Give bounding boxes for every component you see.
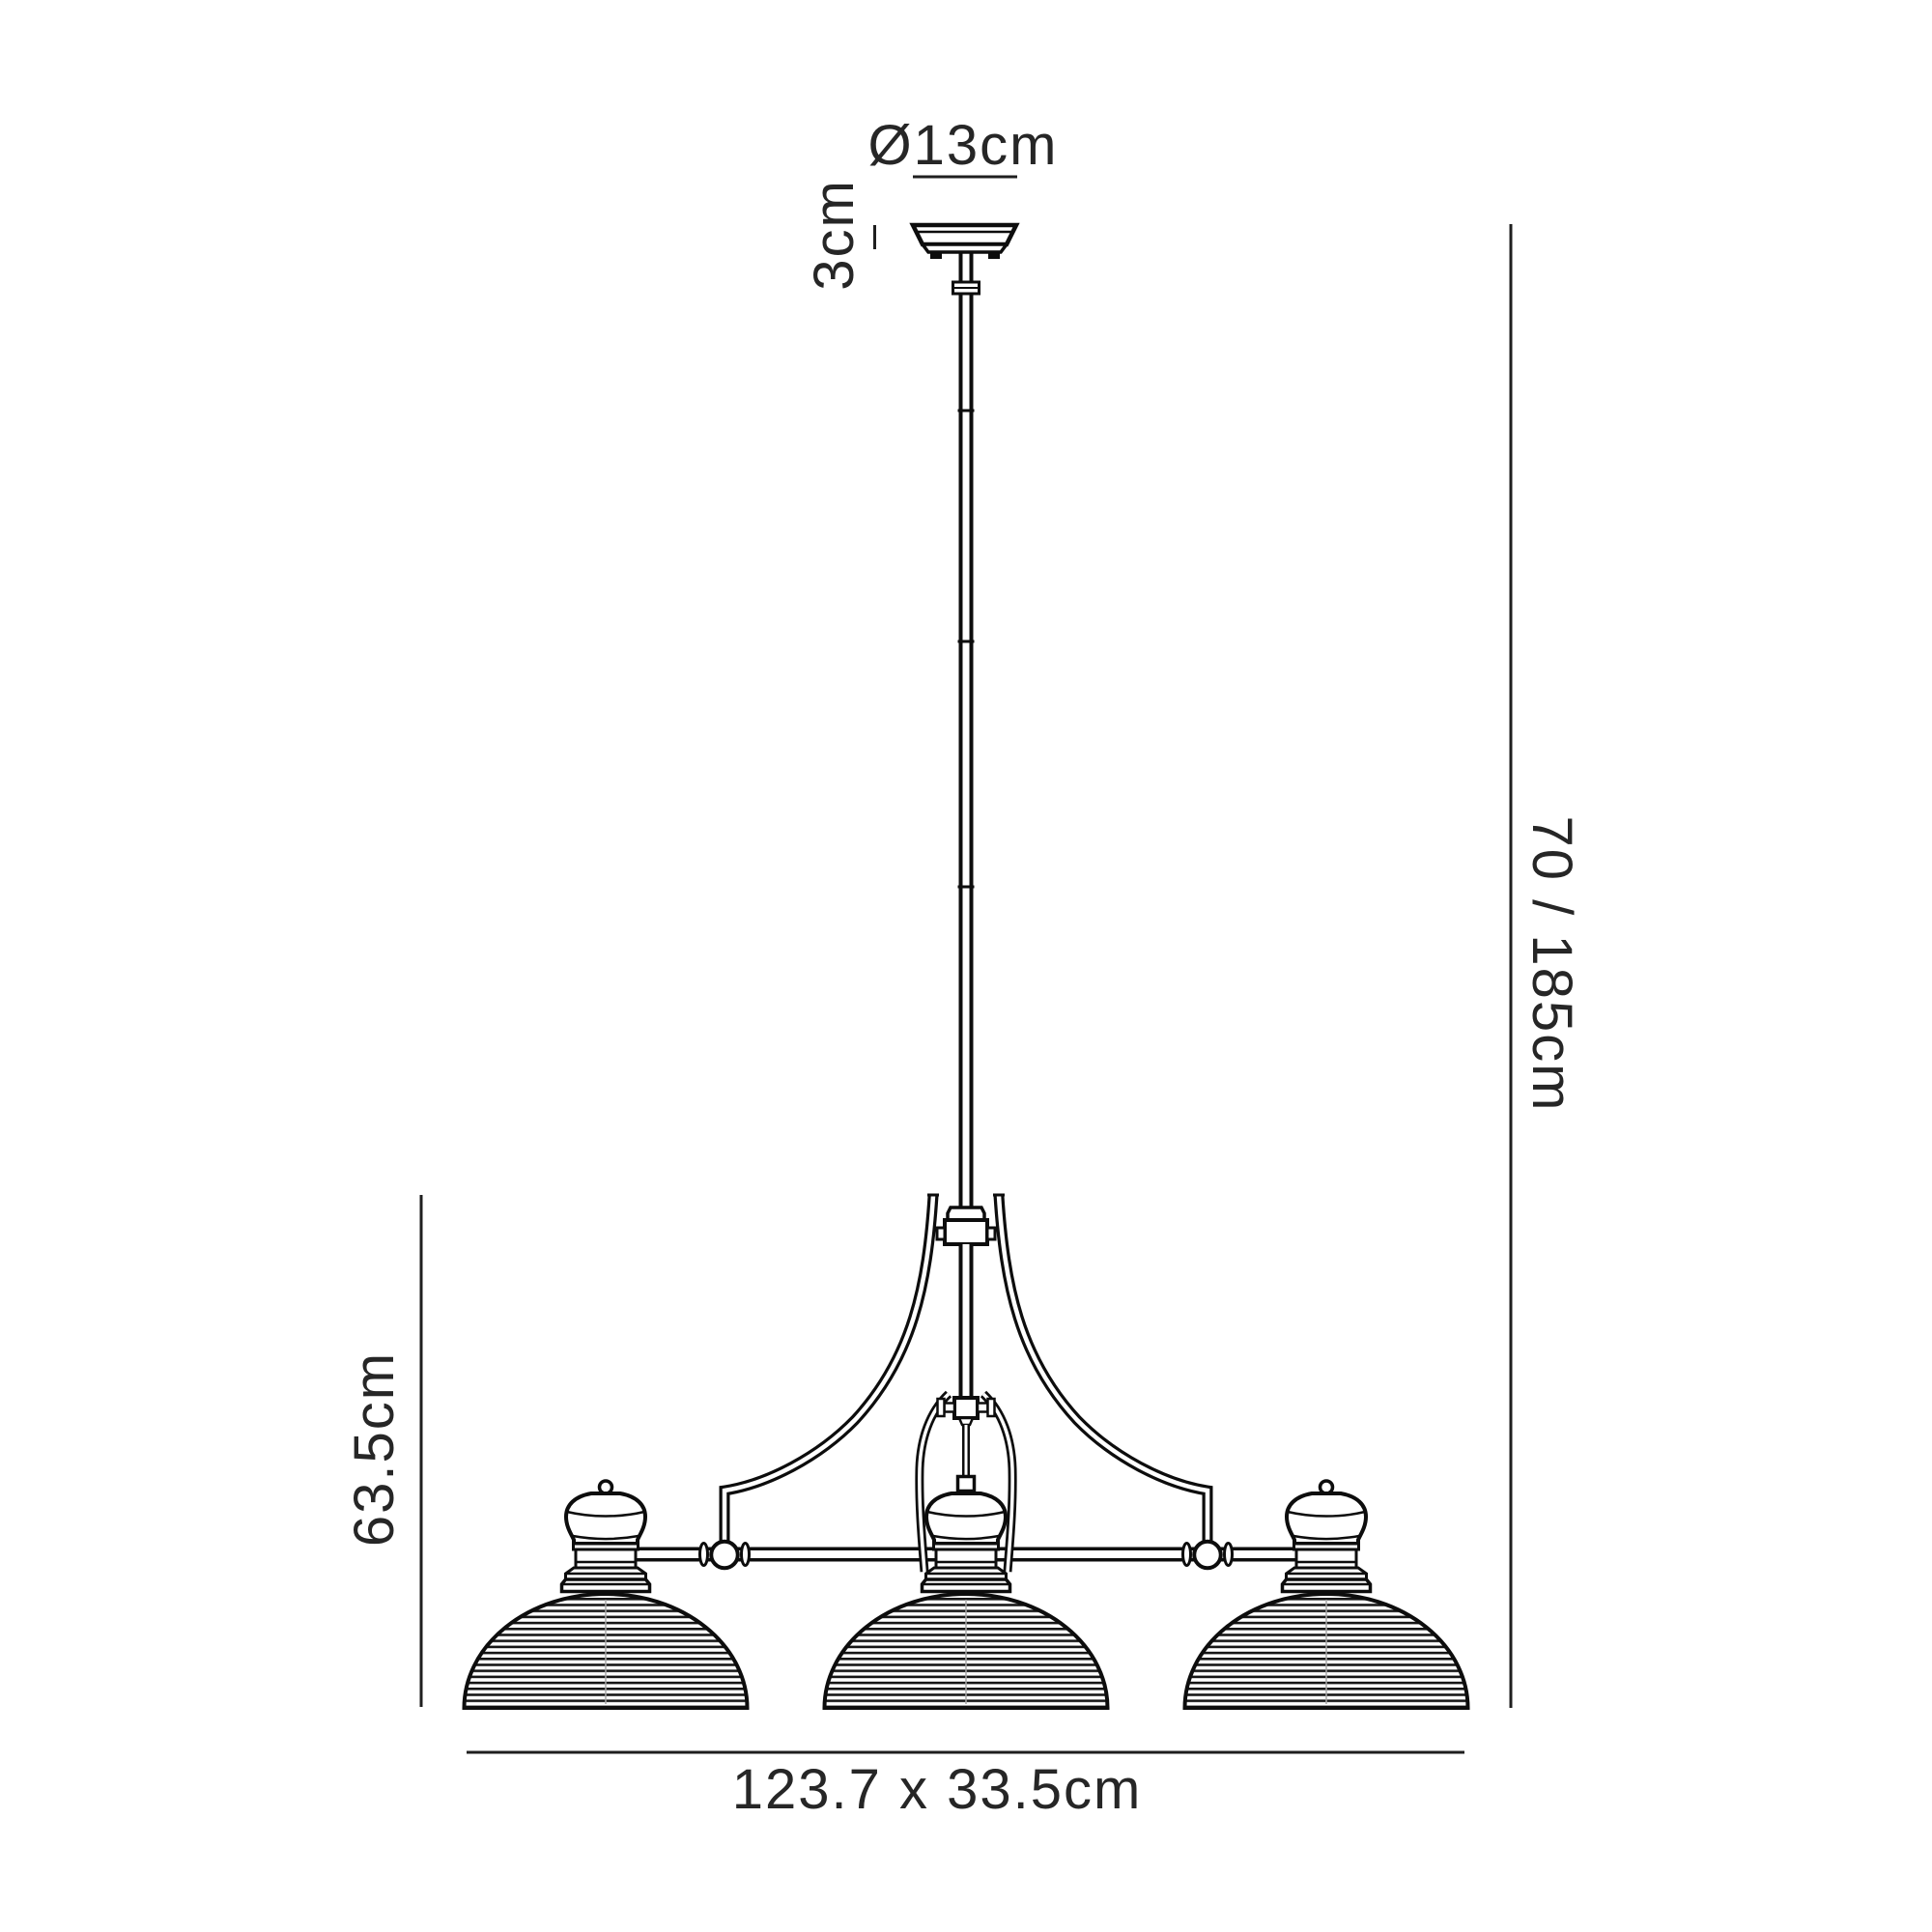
shade-right [1185,1594,1468,1708]
centre-stem [958,1425,975,1492]
canopy-screw [988,252,1000,259]
canopy-height-label: 3cm [803,179,866,291]
frame-arm-right [993,1195,1207,1543]
shade-left [465,1594,748,1708]
frame-arm-left [724,1195,939,1543]
lamp-head-centre [923,1493,1010,1592]
lamp-head-right [1283,1481,1371,1592]
overall-drop-label: 70 / 185cm [1520,816,1583,1113]
rod-coupler [953,282,980,294]
drop-rod [953,253,980,1209]
lamp-head-left [562,1481,650,1592]
overall-size-label: 123.7 x 33.5cm [732,1758,1143,1821]
pendant-light-dimension-diagram: Ø13cm 3cm 70 / 185cm 63.5cm 123.7 x 33.5… [0,0,1932,1932]
diagram-canvas: Ø13cm 3cm 70 / 185cm 63.5cm 123.7 x 33.5… [0,0,1932,1932]
bar-coupler-left [700,1542,750,1569]
ceiling-canopy [913,225,1016,259]
shade-centre [825,1594,1108,1708]
body-height-label: 63.5cm [343,1351,406,1547]
canopy-screw [930,252,942,259]
canopy-diameter-label: Ø13cm [868,114,1059,177]
bar-coupler-right [1183,1542,1233,1569]
frame-hub [937,1207,995,1244]
